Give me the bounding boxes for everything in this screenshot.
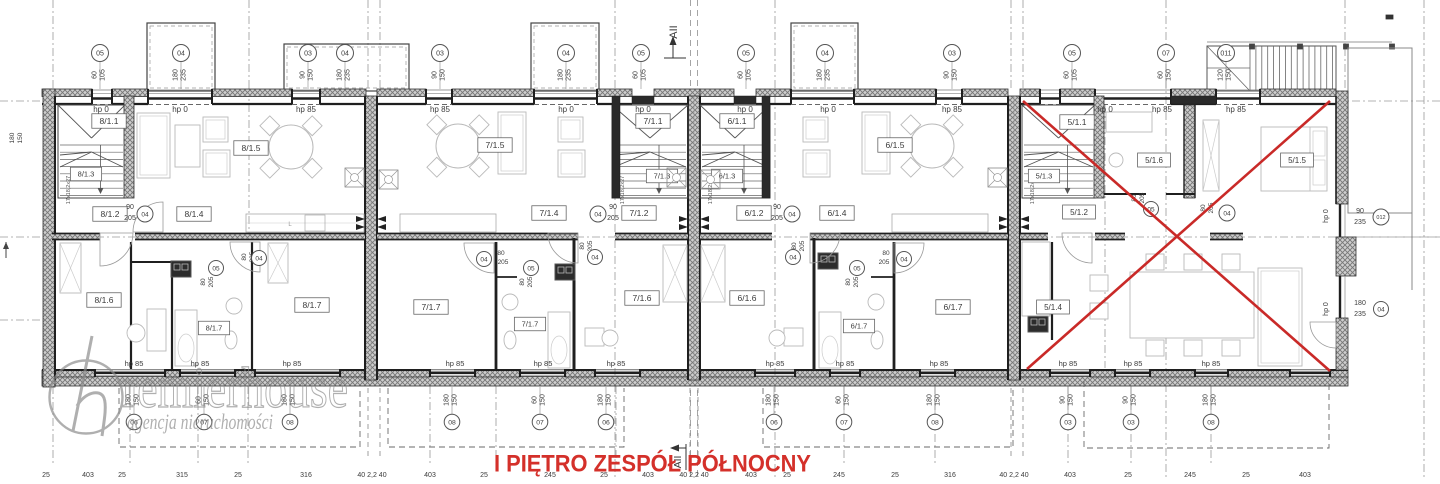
svg-text:05: 05 <box>527 265 535 272</box>
svg-text:6/1.7: 6/1.7 <box>944 302 963 312</box>
svg-text:235: 235 <box>345 69 352 81</box>
svg-text:90: 90 <box>1060 396 1067 404</box>
svg-text:205: 205 <box>853 276 860 287</box>
svg-text:17x18,2x27: 17x18,2x27 <box>620 176 626 204</box>
svg-text:hp 0: hp 0 <box>172 105 188 114</box>
svg-text:hp 85: hp 85 <box>430 105 451 114</box>
svg-text:150: 150 <box>606 394 613 406</box>
svg-text:25: 25 <box>480 472 488 479</box>
svg-text:80: 80 <box>579 242 586 250</box>
svg-text:hp 85: hp 85 <box>1124 359 1143 368</box>
svg-text:012: 012 <box>1376 215 1385 221</box>
svg-text:5/1.2: 5/1.2 <box>1070 208 1088 217</box>
svg-text:80: 80 <box>882 250 890 257</box>
svg-text:25: 25 <box>891 472 899 479</box>
svg-text:205: 205 <box>799 240 806 251</box>
svg-text:235: 235 <box>1354 219 1366 226</box>
svg-text:80: 80 <box>519 278 526 286</box>
svg-text:5/1.6: 5/1.6 <box>1145 156 1163 165</box>
svg-text:205: 205 <box>124 215 136 222</box>
svg-text:8/1.4: 8/1.4 <box>185 209 204 219</box>
svg-text:hp 85: hp 85 <box>534 359 553 368</box>
svg-text:90: 90 <box>773 204 781 211</box>
svg-text:403: 403 <box>424 472 436 479</box>
svg-text:hp 0: hp 0 <box>93 105 109 114</box>
svg-text:05: 05 <box>742 51 750 58</box>
svg-text:hp 85: hp 85 <box>607 359 626 368</box>
svg-text:6/1.6: 6/1.6 <box>738 293 757 303</box>
svg-text:60: 60 <box>1158 71 1165 79</box>
svg-text:5/1.4: 5/1.4 <box>1044 303 1062 312</box>
svg-text:403: 403 <box>82 472 94 479</box>
svg-text:04: 04 <box>562 51 570 58</box>
svg-text:06: 06 <box>770 419 778 426</box>
svg-text:7/1.3: 7/1.3 <box>654 172 671 181</box>
svg-text:hp 0: hp 0 <box>820 105 836 114</box>
svg-text:04: 04 <box>341 51 349 58</box>
svg-text:180: 180 <box>1354 300 1366 307</box>
svg-text:40 2,2 40: 40 2,2 40 <box>357 472 386 479</box>
svg-text:90: 90 <box>944 71 951 79</box>
svg-text:90: 90 <box>126 204 134 211</box>
svg-text:08: 08 <box>931 419 939 426</box>
svg-text:8/1.7: 8/1.7 <box>206 324 223 333</box>
svg-text:04: 04 <box>821 51 829 58</box>
svg-text:80: 80 <box>845 278 852 286</box>
svg-text:315: 315 <box>176 472 188 479</box>
svg-text:hp 85: hp 85 <box>296 105 317 114</box>
svg-text:180: 180 <box>337 69 344 81</box>
svg-text:7/1.5: 7/1.5 <box>486 140 505 150</box>
svg-text:60: 60 <box>92 71 99 79</box>
svg-text:5/1.3: 5/1.3 <box>1036 172 1053 181</box>
svg-text:hp 85: hp 85 <box>836 359 855 368</box>
svg-text:180: 180 <box>9 132 16 143</box>
svg-text:120: 120 <box>1218 69 1225 81</box>
svg-text:hp 0: hp 0 <box>737 105 753 114</box>
svg-text:60: 60 <box>532 396 539 404</box>
svg-text:04: 04 <box>789 254 797 261</box>
svg-text:7/1.2: 7/1.2 <box>630 208 649 218</box>
svg-text:05: 05 <box>96 51 104 58</box>
svg-text:40 2,2 40: 40 2,2 40 <box>999 472 1028 479</box>
svg-text:hp 85: hp 85 <box>1202 359 1221 368</box>
svg-text:180: 180 <box>444 394 451 406</box>
svg-text:8/1.2: 8/1.2 <box>101 209 120 219</box>
svg-text:150: 150 <box>1166 69 1173 81</box>
svg-text:105: 105 <box>100 69 107 81</box>
svg-text:04: 04 <box>177 51 185 58</box>
svg-text:06: 06 <box>602 419 610 426</box>
svg-text:6/1.4: 6/1.4 <box>828 208 847 218</box>
svg-text:403: 403 <box>1299 472 1311 479</box>
svg-text:05: 05 <box>212 265 220 272</box>
svg-text:80: 80 <box>200 278 207 286</box>
svg-text:60: 60 <box>836 396 843 404</box>
svg-text:90: 90 <box>609 204 617 211</box>
svg-text:205: 205 <box>1139 192 1146 203</box>
svg-text:235: 235 <box>181 69 188 81</box>
svg-text:04: 04 <box>900 256 908 263</box>
svg-text:205: 205 <box>208 276 215 287</box>
svg-text:hp 85: hp 85 <box>1152 105 1173 114</box>
svg-text:04: 04 <box>255 255 263 262</box>
svg-text:hp 0: hp 0 <box>1323 302 1330 316</box>
svg-text:180: 180 <box>1203 394 1210 406</box>
svg-text:04: 04 <box>1377 306 1385 313</box>
svg-text:hp 85: hp 85 <box>766 359 785 368</box>
svg-text:03: 03 <box>1064 419 1072 426</box>
svg-text:hp 0: hp 0 <box>635 105 651 114</box>
svg-text:5/1.1: 5/1.1 <box>1068 117 1087 127</box>
svg-text:90: 90 <box>300 71 307 79</box>
svg-text:7/1.6: 7/1.6 <box>633 293 652 303</box>
svg-text:08: 08 <box>1207 419 1215 426</box>
svg-text:8/1.1: 8/1.1 <box>100 116 119 126</box>
svg-text:180: 180 <box>766 394 773 406</box>
svg-text:6/1.7: 6/1.7 <box>851 322 868 331</box>
svg-text:205: 205 <box>879 259 890 266</box>
svg-text:90: 90 <box>1123 396 1130 404</box>
svg-text:hp 0: hp 0 <box>1097 105 1113 114</box>
svg-text:6/1.1: 6/1.1 <box>728 116 747 126</box>
svg-text:150: 150 <box>1131 394 1138 406</box>
svg-text:150: 150 <box>1211 394 1218 406</box>
svg-text:08: 08 <box>286 419 294 426</box>
svg-text:205: 205 <box>607 215 619 222</box>
svg-text:6/1.2: 6/1.2 <box>745 208 764 218</box>
svg-text:04: 04 <box>480 256 488 263</box>
svg-text:60: 60 <box>633 71 640 79</box>
svg-text:150: 150 <box>17 132 24 143</box>
svg-text:hp 85: hp 85 <box>1059 359 1078 368</box>
svg-text:180: 180 <box>558 69 565 81</box>
svg-text:150: 150 <box>952 69 959 81</box>
svg-text:7/1.4: 7/1.4 <box>540 208 559 218</box>
svg-text:25: 25 <box>118 472 126 479</box>
svg-text:235: 235 <box>566 69 573 81</box>
svg-text:hp 0: hp 0 <box>1323 209 1330 223</box>
svg-text:8/1.5: 8/1.5 <box>242 143 261 153</box>
svg-text:90: 90 <box>1356 208 1364 215</box>
svg-text:150: 150 <box>1068 394 1075 406</box>
svg-text:04: 04 <box>788 211 796 218</box>
svg-text:03: 03 <box>1127 419 1135 426</box>
svg-text:hp 85: hp 85 <box>930 359 949 368</box>
svg-text:150: 150 <box>935 394 942 406</box>
svg-text:25: 25 <box>42 472 50 479</box>
svg-text:150: 150 <box>452 394 459 406</box>
svg-text:80: 80 <box>497 250 505 257</box>
svg-text:180: 180 <box>817 69 824 81</box>
svg-text:07: 07 <box>536 419 544 426</box>
svg-text:150: 150 <box>440 69 447 81</box>
svg-text:03: 03 <box>436 51 444 58</box>
svg-text:150: 150 <box>308 69 315 81</box>
svg-text:150: 150 <box>844 394 851 406</box>
svg-text:07: 07 <box>840 419 848 426</box>
svg-text:hp 0: hp 0 <box>558 105 574 114</box>
svg-text:105: 105 <box>1072 69 1079 81</box>
svg-text:105: 105 <box>746 69 753 81</box>
svg-text:80: 80 <box>241 253 248 261</box>
svg-text:hp 85: hp 85 <box>446 359 465 368</box>
svg-text:150: 150 <box>1226 69 1233 81</box>
svg-text:04: 04 <box>591 254 599 261</box>
svg-text:180: 180 <box>173 69 180 81</box>
svg-text:5/1.5: 5/1.5 <box>1288 156 1306 165</box>
svg-text:04: 04 <box>594 211 602 218</box>
svg-text:03: 03 <box>304 51 312 58</box>
svg-text:6/1.5: 6/1.5 <box>886 140 905 150</box>
svg-text:agencja nieruchomości: agencja nieruchomości <box>127 409 273 434</box>
svg-text:150: 150 <box>774 394 781 406</box>
svg-text:205: 205 <box>771 215 783 222</box>
svg-text:7/1.7: 7/1.7 <box>422 302 441 312</box>
svg-text:180: 180 <box>927 394 934 406</box>
svg-text:105: 105 <box>641 69 648 81</box>
svg-text:05: 05 <box>637 51 645 58</box>
svg-text:011: 011 <box>1220 51 1231 58</box>
svg-text:150: 150 <box>540 394 547 406</box>
svg-text:8/1.7: 8/1.7 <box>303 300 322 310</box>
svg-text:I PIĘTRO ZESPÓŁ PÓŁNOCNY: I PIĘTRO ZESPÓŁ PÓŁNOCNY <box>494 450 811 478</box>
svg-text:8/1.6: 8/1.6 <box>95 295 114 305</box>
svg-text:25: 25 <box>1242 472 1250 479</box>
svg-text:235: 235 <box>825 69 832 81</box>
svg-text:7/1.1: 7/1.1 <box>644 116 663 126</box>
svg-text:8/1.3: 8/1.3 <box>78 170 95 179</box>
svg-text:04: 04 <box>1223 210 1231 217</box>
svg-text:60: 60 <box>738 71 745 79</box>
svg-text:7/1.7: 7/1.7 <box>522 320 539 329</box>
svg-text:245: 245 <box>1184 472 1196 479</box>
svg-text:03: 03 <box>948 51 956 58</box>
svg-text:205: 205 <box>498 259 509 266</box>
svg-text:80: 80 <box>791 242 798 250</box>
svg-text:07: 07 <box>1162 51 1170 58</box>
svg-text:04: 04 <box>141 211 149 218</box>
svg-text:05: 05 <box>1068 51 1076 58</box>
svg-text:08: 08 <box>448 419 456 426</box>
svg-text:hp 85: hp 85 <box>942 105 963 114</box>
svg-text:60: 60 <box>1064 71 1071 79</box>
svg-text:180: 180 <box>598 394 605 406</box>
svg-text:245: 245 <box>833 472 845 479</box>
svg-text:25: 25 <box>234 472 242 479</box>
svg-text:316: 316 <box>944 472 956 479</box>
svg-text:hp 85: hp 85 <box>1226 105 1247 114</box>
svg-text:90: 90 <box>432 71 439 79</box>
svg-text:05: 05 <box>853 265 861 272</box>
svg-text:6/1.3: 6/1.3 <box>719 172 736 181</box>
svg-text:205: 205 <box>527 276 534 287</box>
svg-text:AII: AII <box>668 25 680 38</box>
svg-text:316: 316 <box>300 472 312 479</box>
svg-text:235: 235 <box>1354 311 1366 318</box>
svg-text:25: 25 <box>1124 472 1132 479</box>
svg-text:403: 403 <box>1064 472 1076 479</box>
